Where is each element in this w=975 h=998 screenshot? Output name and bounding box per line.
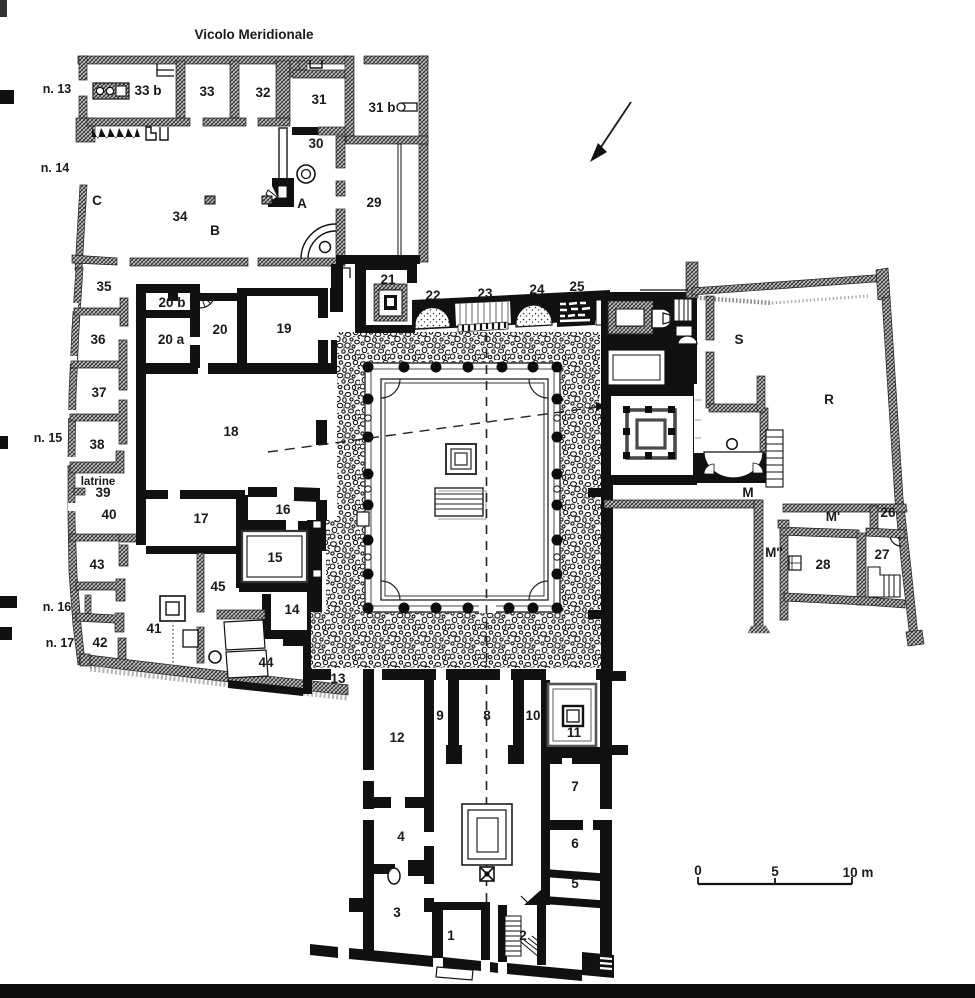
svg-text:n. 15: n. 15: [34, 431, 63, 445]
svg-text:39: 39: [95, 485, 110, 500]
svg-text:15: 15: [267, 550, 283, 565]
svg-text:R: R: [824, 392, 834, 407]
svg-text:44: 44: [258, 655, 274, 670]
svg-text:20: 20: [212, 322, 227, 337]
svg-text:31: 31: [311, 92, 327, 107]
svg-text:2: 2: [519, 928, 527, 943]
svg-text:43: 43: [89, 557, 105, 572]
svg-text:B: B: [210, 223, 220, 238]
svg-text:n. 17: n. 17: [46, 636, 75, 650]
svg-text:Vicolo Meridionale: Vicolo Meridionale: [194, 27, 314, 42]
svg-text:n. 14: n. 14: [41, 161, 70, 175]
svg-text:1: 1: [447, 928, 455, 943]
svg-text:n. 16: n. 16: [43, 600, 72, 614]
svg-text:0: 0: [694, 863, 702, 878]
svg-text:9: 9: [436, 708, 444, 723]
svg-text:42: 42: [92, 635, 107, 650]
svg-text:12: 12: [389, 730, 404, 745]
svg-text:16: 16: [275, 502, 291, 517]
svg-text:7: 7: [571, 779, 579, 794]
svg-text:20 a: 20 a: [158, 332, 185, 347]
svg-text:3: 3: [393, 905, 401, 920]
svg-text:4: 4: [397, 829, 405, 844]
svg-text:M': M': [826, 509, 840, 524]
svg-text:14: 14: [284, 602, 300, 617]
svg-text:40: 40: [101, 507, 116, 522]
svg-text:45: 45: [210, 579, 226, 594]
svg-text:32: 32: [255, 85, 270, 100]
svg-text:13: 13: [330, 671, 346, 686]
svg-text:33 b: 33 b: [134, 83, 161, 98]
svg-text:36: 36: [90, 332, 106, 347]
svg-text:26: 26: [880, 505, 896, 520]
svg-text:20 b: 20 b: [158, 295, 185, 310]
svg-text:37: 37: [91, 385, 106, 400]
svg-text:29: 29: [366, 195, 381, 210]
svg-text:25: 25: [569, 279, 585, 294]
svg-text:M: M: [742, 485, 753, 500]
svg-text:A: A: [297, 196, 307, 211]
svg-text:19: 19: [276, 321, 291, 336]
svg-text:18: 18: [223, 424, 239, 439]
svg-text:10: 10: [525, 708, 540, 723]
svg-text:10 m: 10 m: [843, 865, 874, 880]
svg-text:22: 22: [425, 288, 440, 303]
svg-text:33: 33: [199, 84, 215, 99]
svg-text:31 b: 31 b: [368, 100, 395, 115]
svg-text:5: 5: [771, 864, 779, 879]
svg-text:41: 41: [146, 621, 162, 636]
svg-text:23: 23: [477, 286, 493, 301]
svg-text:11: 11: [567, 725, 582, 740]
svg-text:C: C: [92, 193, 102, 208]
svg-text:28: 28: [815, 557, 831, 572]
svg-text:5: 5: [571, 876, 579, 891]
svg-text:M'': M'': [765, 545, 783, 560]
svg-text:S: S: [734, 332, 743, 347]
svg-text:21: 21: [380, 272, 396, 287]
svg-text:17: 17: [193, 511, 208, 526]
svg-text:24: 24: [529, 282, 545, 297]
svg-text:27: 27: [874, 547, 889, 562]
svg-text:6: 6: [571, 836, 579, 851]
svg-text:n. 13: n. 13: [43, 82, 72, 96]
svg-text:35: 35: [96, 279, 112, 294]
svg-text:34: 34: [172, 209, 188, 224]
svg-text:38: 38: [89, 437, 105, 452]
svg-text:8: 8: [483, 708, 491, 723]
svg-text:30: 30: [308, 136, 323, 151]
